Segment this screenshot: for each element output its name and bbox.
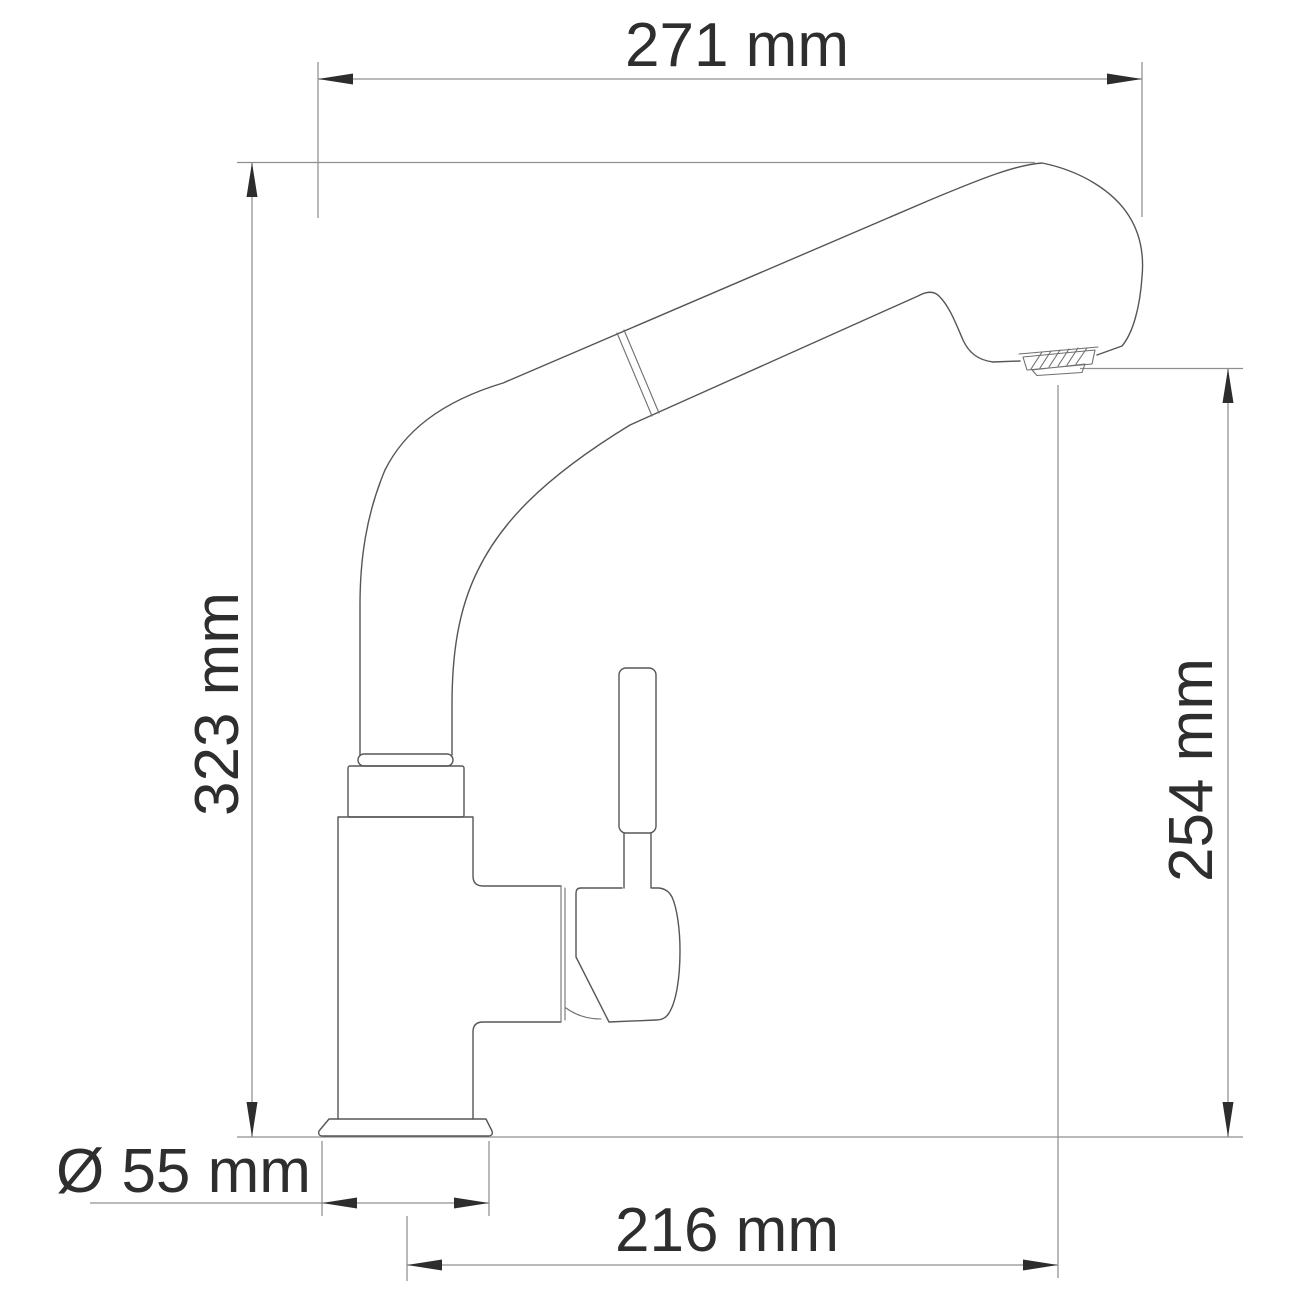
pipe-collar: [358, 754, 453, 766]
dimension-labels-group: 271 mm 323 mm 254 mm Ø 55 mm 216 mm: [56, 11, 1226, 1265]
top-width-label: 271 mm: [625, 11, 849, 80]
cartridge-joint-ring: [561, 886, 565, 1022]
main-body: [338, 817, 561, 1119]
bottom-depth-dimension-line: [407, 385, 1058, 1281]
cartridge-housing: [576, 888, 680, 1022]
aerator-nozzle: [1019, 347, 1098, 376]
faucet-outline-group: [319, 163, 1143, 1136]
right-height-label: 254 mm: [1157, 658, 1226, 882]
dimension-arrowheads-group: [247, 74, 1234, 1271]
faucet-technical-drawing: 271 mm 323 mm 254 mm Ø 55 mm 216 mm: [0, 0, 1300, 1300]
handle-grip: [619, 668, 656, 833]
left-height-label: 323 mm: [183, 592, 252, 816]
technical-drawing-canvas: 271 mm 323 mm 254 mm Ø 55 mm 216 mm: [0, 0, 1300, 1300]
dimension-lines-group: [90, 62, 1243, 1281]
bottom-depth-label: 216 mm: [615, 1196, 839, 1265]
spout-inner-outline: [452, 292, 1020, 755]
spray-head-seam: [617, 330, 659, 416]
top-width-dimension-line: [318, 62, 1142, 218]
base-skirt: [319, 1119, 493, 1136]
handle-stem: [624, 833, 651, 888]
upper-body-block: [348, 766, 464, 817]
spout-outer-outline: [360, 163, 1143, 755]
base-diameter-label: Ø 55 mm: [56, 1137, 311, 1206]
housing-underside-arc: [566, 1008, 601, 1019]
